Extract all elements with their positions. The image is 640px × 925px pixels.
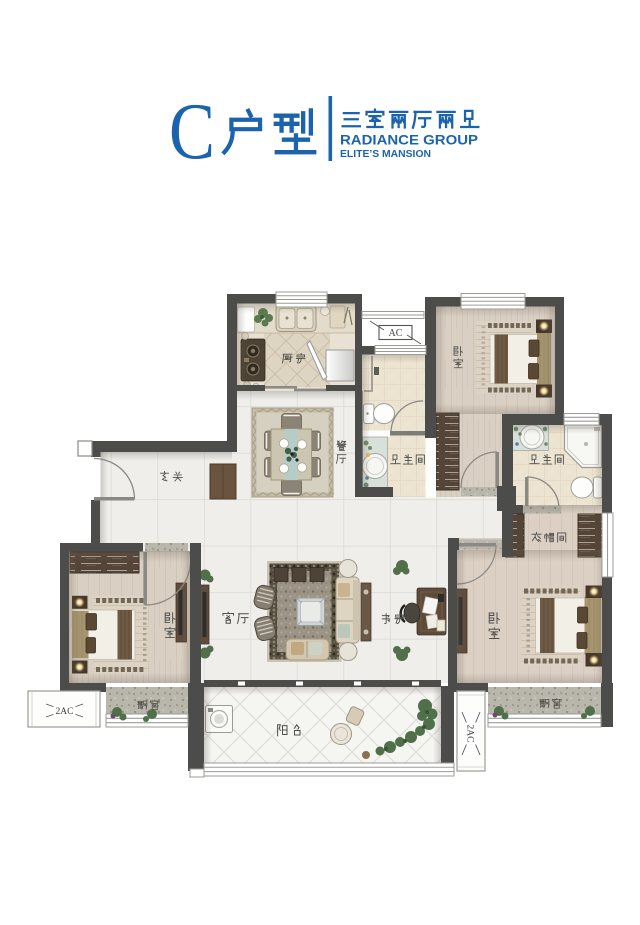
svg-text:2AC: 2AC bbox=[56, 707, 74, 717]
svg-text:2AC: 2AC bbox=[465, 725, 475, 743]
svg-text:RADIANCE GROUP: RADIANCE GROUP bbox=[340, 133, 478, 148]
svg-text:C: C bbox=[169, 88, 215, 176]
svg-text:ELITE’S MANSION: ELITE’S MANSION bbox=[340, 149, 431, 160]
svg-text:AC: AC bbox=[389, 328, 403, 339]
